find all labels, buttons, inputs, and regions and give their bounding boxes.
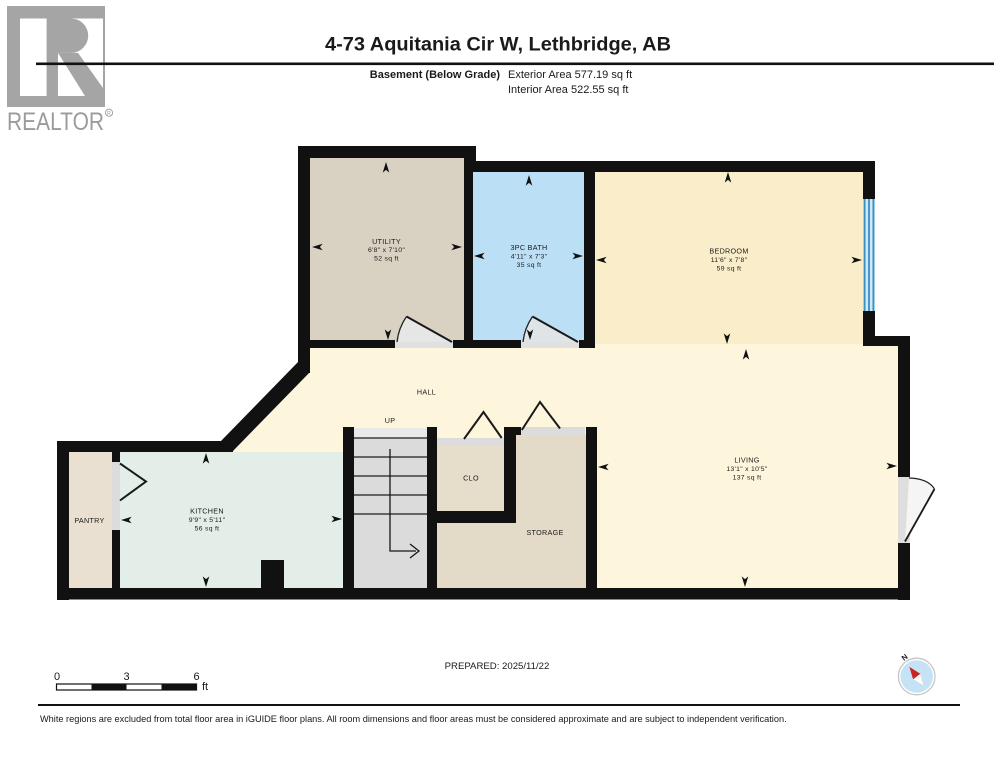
svg-text:137 sq ft: 137 sq ft	[733, 474, 762, 481]
svg-text:56 sq ft: 56 sq ft	[195, 525, 220, 532]
svg-text:UTILITY: UTILITY	[372, 237, 401, 246]
svg-text:Interior Area 522.55 sq ft: Interior Area 522.55 sq ft	[508, 84, 628, 96]
svg-text:0: 0	[54, 671, 60, 683]
svg-text:HALL: HALL	[417, 387, 436, 396]
svg-text:4-73 Aquitania Cir W, Lethbrid: 4-73 Aquitania Cir W, Lethbridge, AB	[325, 34, 671, 56]
svg-text:Exterior Area 577.19 sq ft: Exterior Area 577.19 sq ft	[508, 69, 632, 81]
svg-text:9'9" x 5'11": 9'9" x 5'11"	[189, 517, 226, 524]
svg-text:PREPARED: 2025/11/22: PREPARED: 2025/11/22	[445, 661, 550, 672]
svg-text:CLO: CLO	[463, 474, 479, 483]
svg-text:6: 6	[193, 671, 199, 683]
svg-text:11'6" x 7'8": 11'6" x 7'8"	[711, 257, 748, 264]
svg-text:R: R	[107, 111, 111, 117]
svg-text:KITCHEN: KITCHEN	[190, 507, 224, 516]
svg-text:3PC BATH: 3PC BATH	[510, 243, 547, 252]
svg-text:UP: UP	[385, 416, 396, 425]
svg-text:BEDROOM: BEDROOM	[709, 247, 748, 256]
svg-text:6'8" x 7'10": 6'8" x 7'10"	[368, 247, 405, 254]
svg-text:13'1" x 10'5": 13'1" x 10'5"	[726, 466, 767, 473]
svg-text:STORAGE: STORAGE	[526, 528, 563, 537]
svg-text:REALTOR: REALTOR	[7, 108, 104, 136]
svg-text:LIVING: LIVING	[734, 456, 759, 465]
svg-text:ft: ft	[202, 681, 208, 693]
svg-text:52 sq ft: 52 sq ft	[374, 256, 399, 263]
svg-text:White regions are excluded fro: White regions are excluded from total fl…	[40, 714, 787, 724]
svg-text:35 sq ft: 35 sq ft	[517, 262, 542, 269]
svg-text:Basement (Below Grade): Basement (Below Grade)	[370, 69, 501, 81]
svg-text:PANTRY: PANTRY	[74, 516, 104, 525]
svg-text:4'11" x 7'3": 4'11" x 7'3"	[511, 253, 548, 260]
svg-text:59 sq ft: 59 sq ft	[717, 265, 742, 272]
svg-text:3: 3	[123, 671, 129, 683]
